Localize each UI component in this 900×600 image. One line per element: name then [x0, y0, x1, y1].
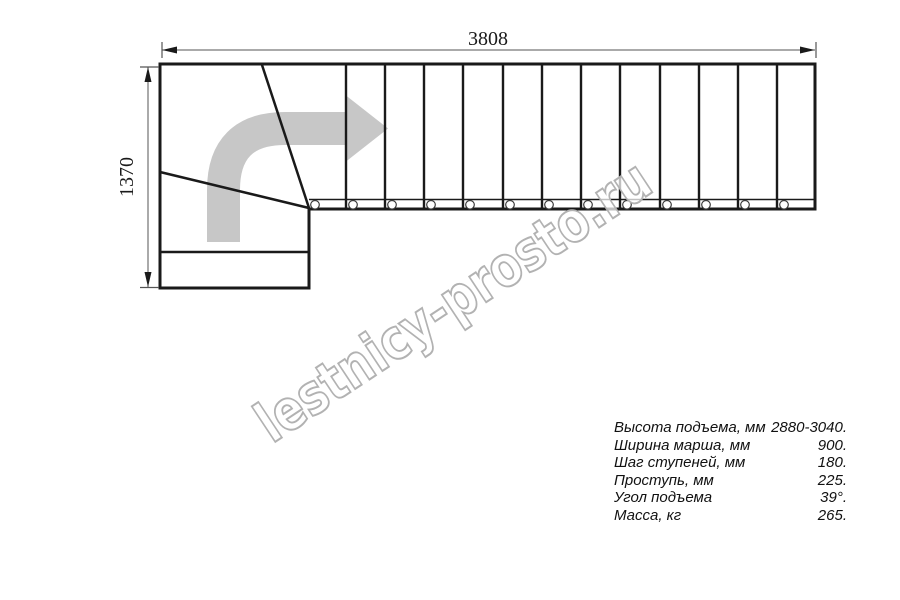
spec-label: Ширина марша, мм — [614, 437, 750, 455]
baluster-circle — [427, 201, 436, 210]
width-dimension-arrow-left — [162, 47, 177, 54]
baluster-circle — [349, 201, 358, 210]
spec-label: Угол подъема — [614, 489, 712, 507]
spec-label: Высота подъема, мм — [614, 419, 766, 437]
staircase-drawing-page: 3808 1370 lestnicy-prosto.ru Высота подъ… — [0, 0, 900, 600]
spec-value: 2880-3040. — [771, 419, 847, 437]
baluster-circle — [388, 201, 397, 210]
baluster-circle — [702, 201, 711, 210]
spec-value: 39°. — [820, 489, 847, 507]
baluster-circle — [663, 201, 672, 210]
spec-label: Проступь, мм — [614, 472, 714, 490]
baluster-circle — [466, 201, 475, 210]
baluster-circle — [311, 201, 320, 210]
spec-value: 900. — [818, 437, 847, 455]
height-dimension-arrow-bottom — [145, 272, 152, 287]
spec-label: Масса, кг — [614, 507, 681, 525]
baluster-circle — [506, 201, 515, 210]
spec-value: 265. — [818, 507, 847, 525]
specs-table: Высота подъема, мм 2880-3040. Ширина мар… — [614, 419, 847, 525]
spec-value: 225. — [818, 472, 847, 490]
width-dimension: 3808 — [162, 28, 816, 58]
watermark-text: lestnicy-prosto.ru — [244, 148, 663, 456]
spec-row: Угол подъема 39°. — [614, 489, 847, 507]
height-dimension-label: 1370 — [116, 157, 138, 197]
width-dimension-label: 3808 — [468, 28, 508, 50]
height-dimension: 1370 — [116, 67, 159, 288]
spec-label: Шаг ступеней, мм — [614, 454, 745, 472]
height-dimension-arrow-top — [145, 67, 152, 82]
spec-row: Масса, кг 265. — [614, 507, 847, 525]
spec-row: Шаг ступеней, мм 180. — [614, 454, 847, 472]
spec-value: 180. — [818, 454, 847, 472]
spec-row: Высота подъема, мм 2880-3040. — [614, 419, 847, 437]
direction-arrow-icon — [224, 96, 389, 243]
width-dimension-arrow-right — [800, 47, 815, 54]
spec-row: Ширина марша, мм 900. — [614, 437, 847, 455]
baluster-circle — [741, 201, 750, 210]
baluster-circle — [780, 201, 789, 210]
spec-row: Проступь, мм 225. — [614, 472, 847, 490]
step-lines — [346, 64, 777, 208]
